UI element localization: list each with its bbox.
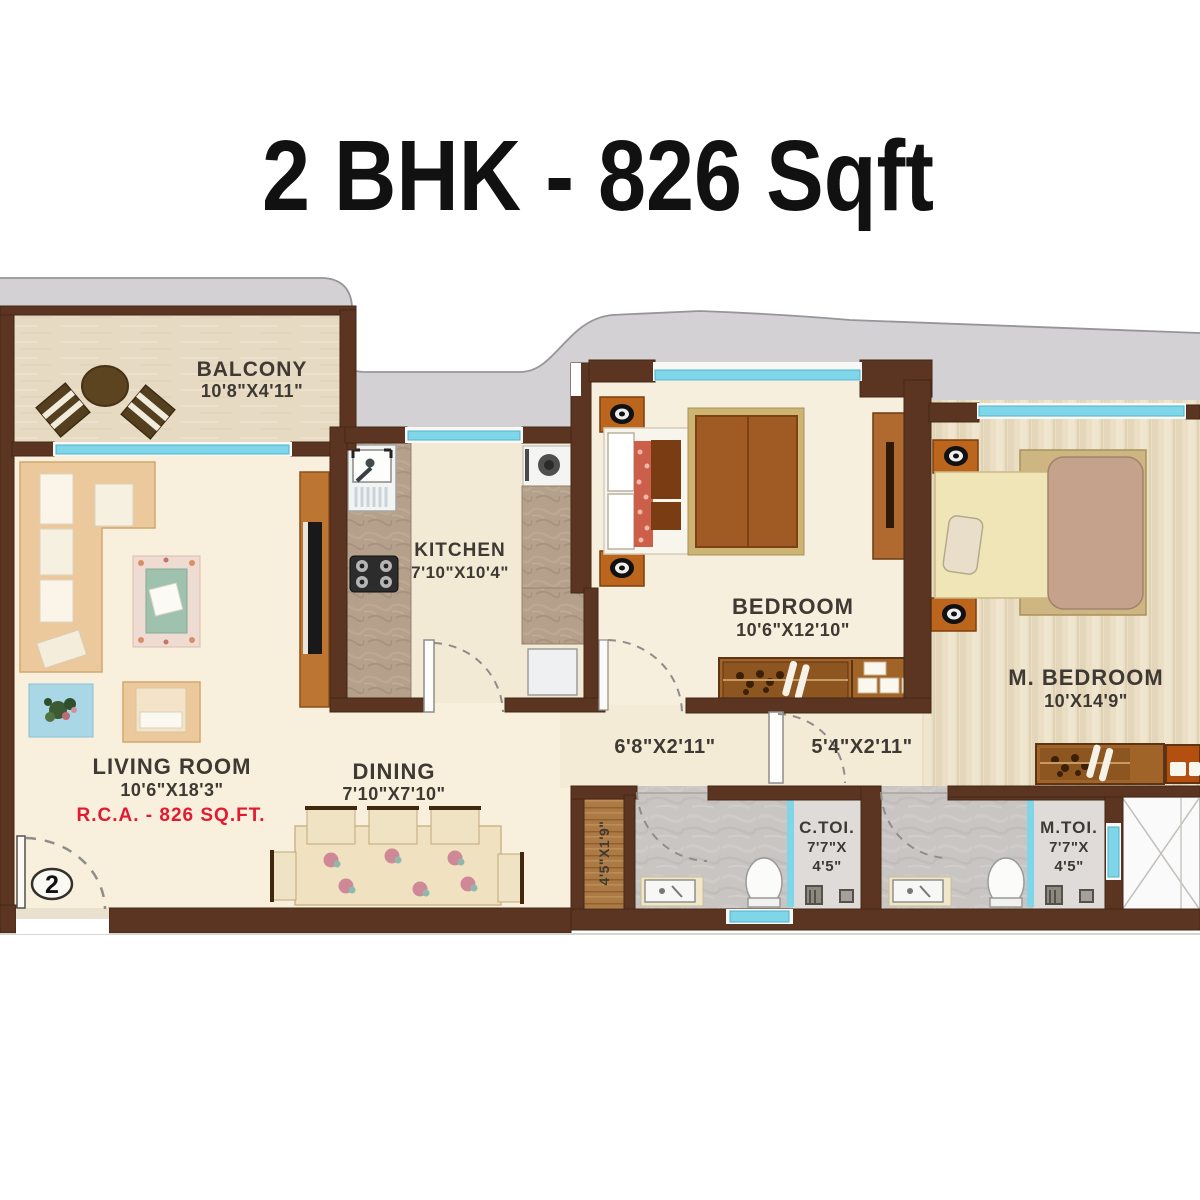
svg-text:7'10"X7'10": 7'10"X7'10" [342,784,445,804]
svg-text:C.TOI.: C.TOI. [799,818,855,837]
svg-text:M. BEDROOM: M. BEDROOM [1008,665,1163,690]
svg-text:LIVING ROOM: LIVING ROOM [93,754,252,779]
svg-text:KITCHEN: KITCHEN [414,540,505,561]
svg-text:7'7"X: 7'7"X [807,839,847,856]
svg-text:10'6"X18'3": 10'6"X18'3" [120,780,223,800]
svg-text:10'8"X4'11": 10'8"X4'11" [201,381,303,401]
svg-text:2 BHK - 826 Sqft: 2 BHK - 826 Sqft [262,120,934,232]
svg-text:5'4"X2'11": 5'4"X2'11" [811,736,912,758]
svg-text:2: 2 [45,871,59,899]
svg-text:R.C.A. - 826 SQ.FT.: R.C.A. - 826 SQ.FT. [77,805,266,826]
svg-text:BEDROOM: BEDROOM [732,594,854,619]
svg-text:10'X14'9": 10'X14'9" [1044,691,1128,711]
svg-text:M.TOI.: M.TOI. [1040,818,1098,837]
svg-text:BALCONY: BALCONY [197,358,308,381]
svg-text:10'6"X12'10": 10'6"X12'10" [736,620,850,640]
svg-text:4'5": 4'5" [1054,858,1083,875]
svg-text:4'5"X1'9": 4'5"X1'9" [596,821,612,886]
svg-text:7'7"X: 7'7"X [1049,839,1089,856]
svg-text:7'10"X10'4": 7'10"X10'4" [411,563,509,582]
svg-text:4'5": 4'5" [812,858,841,875]
svg-text:DINING: DINING [353,759,436,784]
svg-text:6'8"X2'11": 6'8"X2'11" [614,736,715,758]
